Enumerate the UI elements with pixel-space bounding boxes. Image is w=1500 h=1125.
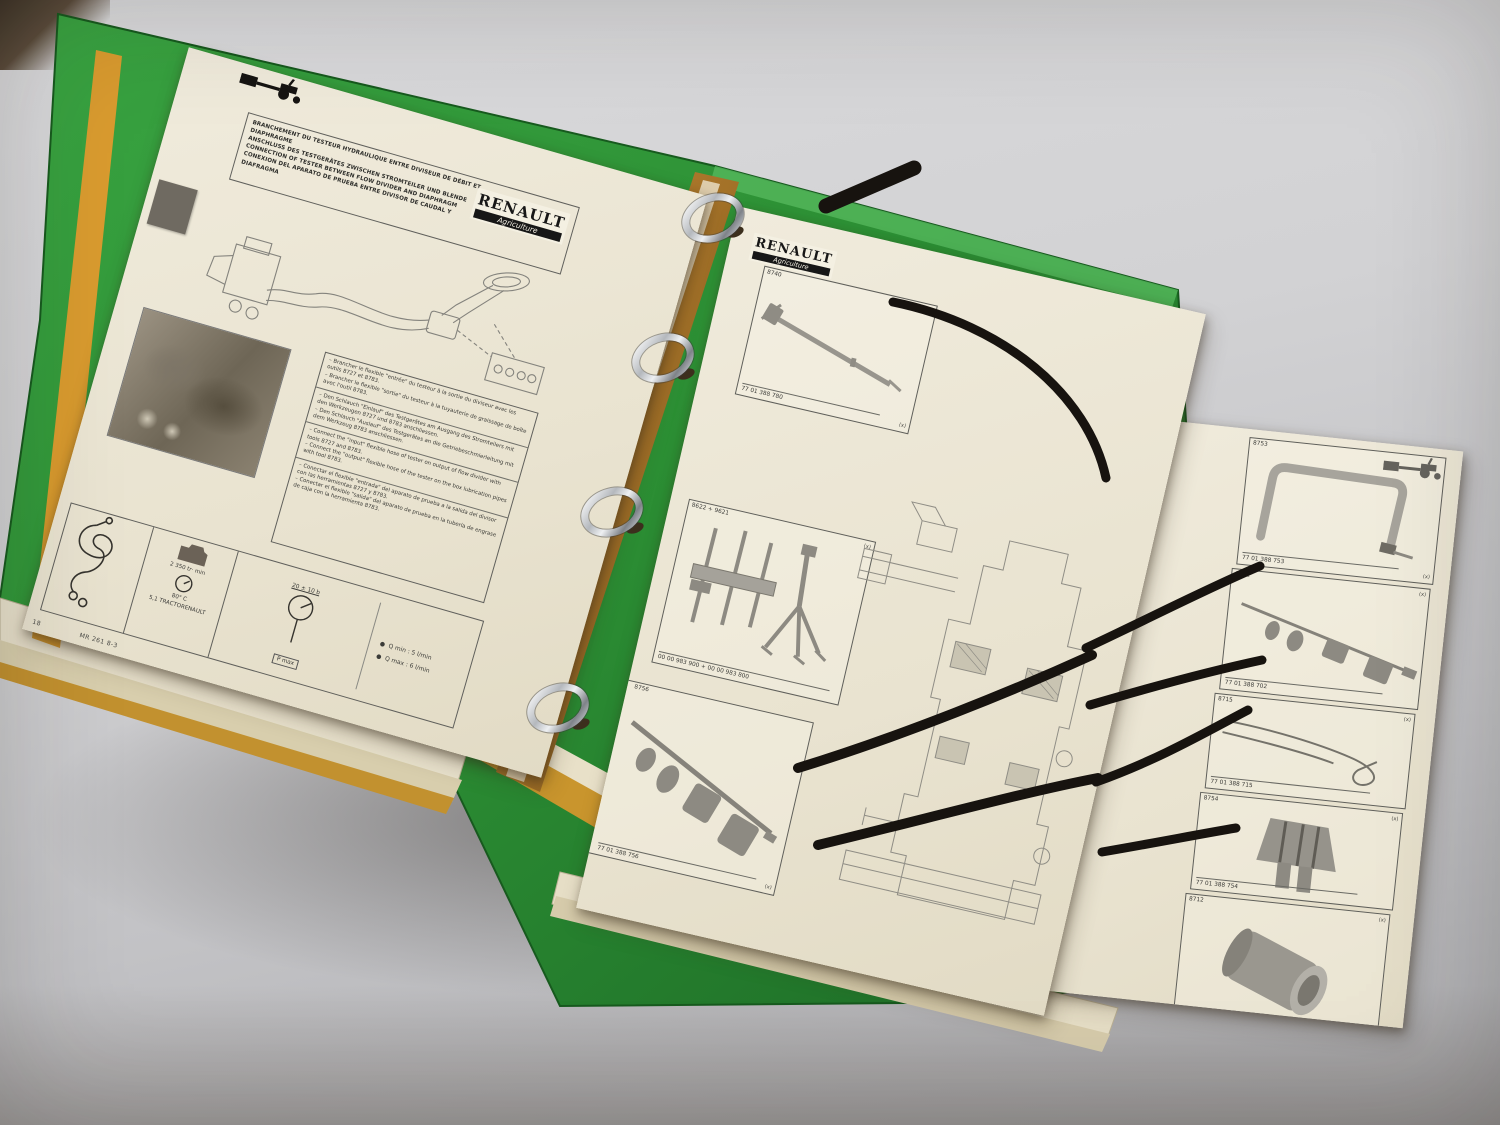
left-page-number: 18 <box>31 619 41 628</box>
pressure-gauge-icon <box>271 589 324 650</box>
qty-8753: (x) <box>1422 574 1430 581</box>
qty-8756: (x) <box>764 884 772 891</box>
qty-8740: (x) <box>898 422 906 429</box>
section-index-tab <box>147 179 198 234</box>
temperature-clock-icon <box>171 571 196 596</box>
tool-box-8754: 8754 (x) 77 01 388 754 <box>1190 792 1403 911</box>
tool-box-8702: 8702 (x) 77 01 388 702 <box>1219 568 1431 710</box>
renault-logo: RENAULT Agriculture <box>470 188 571 245</box>
pressure-gauge: 20 ± 10 b P max <box>208 552 383 699</box>
photo-of-open-ring-binder: BRANCHEMENT DU TESTEUR HYDRAULIQUE ENTRE… <box>0 0 1500 1125</box>
left-page-manual-ref: MR 261 8-3 <box>79 632 119 650</box>
tool-box-8740: 8740 77 01 388 780 (x) <box>735 266 938 435</box>
tool-box-8753: 8753 77 01 388 753 (x) <box>1236 437 1446 585</box>
pmax-label: P max <box>271 653 299 670</box>
tool-box-8715: 8715 (x) 77 01 388 715 <box>1205 693 1416 810</box>
